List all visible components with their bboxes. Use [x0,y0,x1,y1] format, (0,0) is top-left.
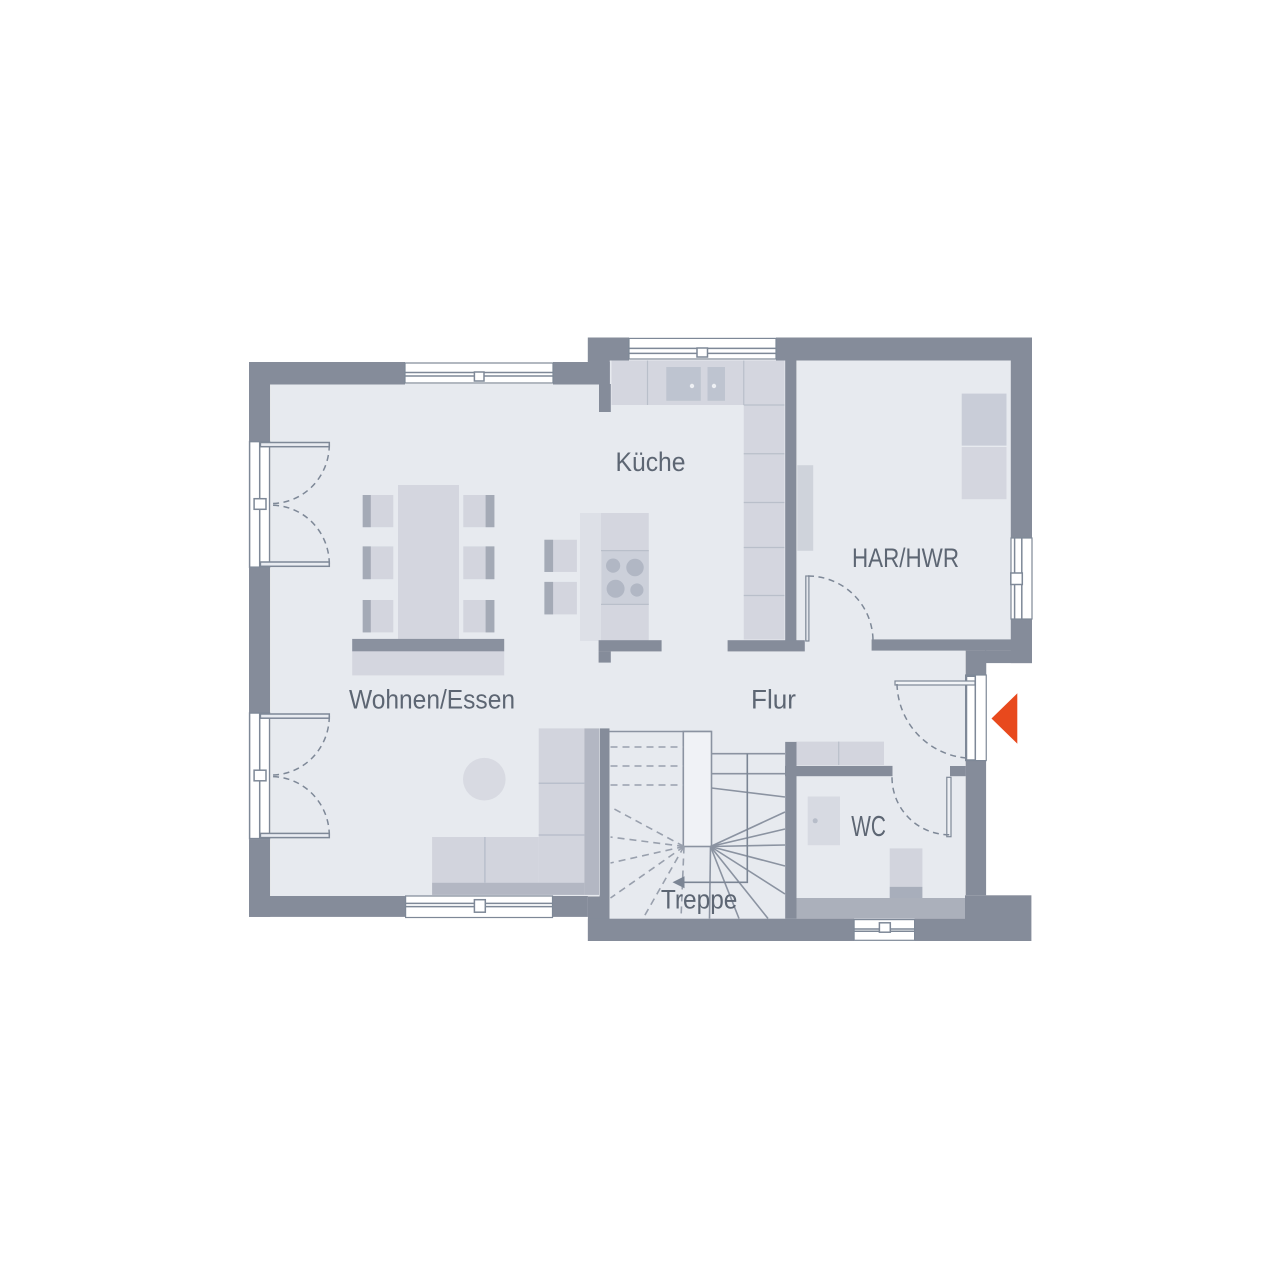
svg-text:Flur: Flur [751,685,796,715]
svg-text:HAR/HWR: HAR/HWR [852,543,959,573]
svg-text:Küche: Küche [616,447,686,477]
svg-text:Wohnen/Essen: Wohnen/Essen [349,685,515,715]
svg-text:WC: WC [851,811,886,843]
svg-text:Treppe: Treppe [661,885,738,915]
